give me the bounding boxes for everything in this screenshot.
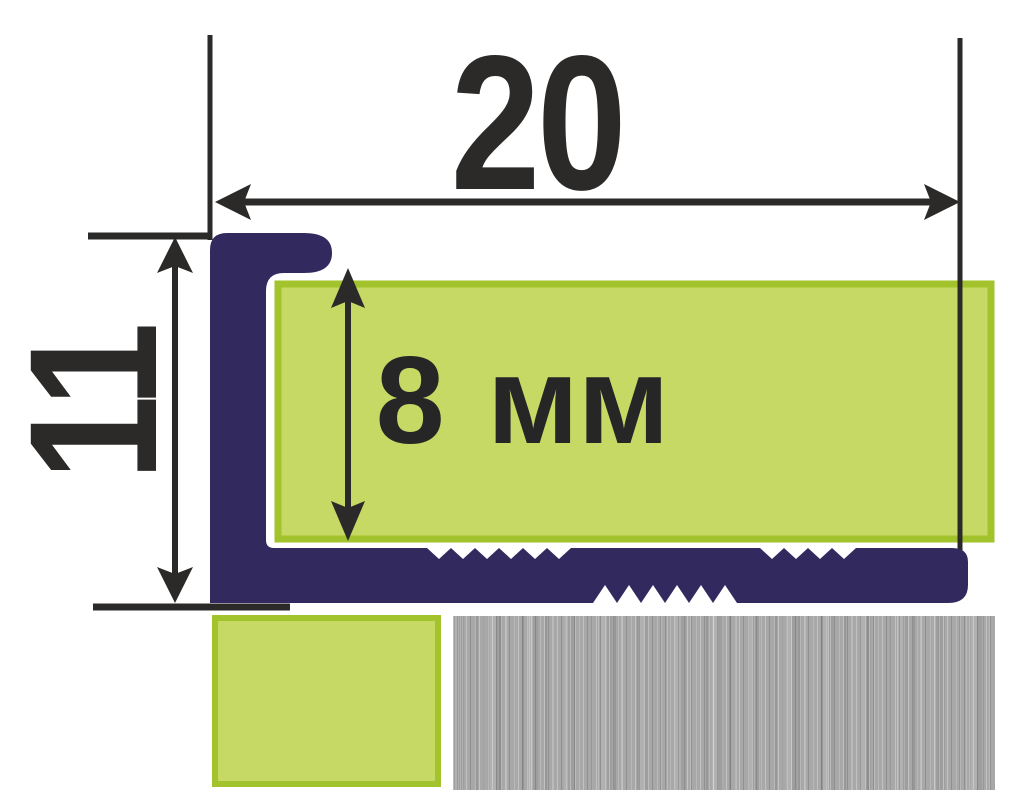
thickness-label: 8 мм <box>357 339 687 463</box>
width-label: 20 <box>419 27 654 219</box>
product-dimension-diagram: 20 11 8 мм <box>0 0 1024 803</box>
height-label: 11 <box>0 277 193 529</box>
